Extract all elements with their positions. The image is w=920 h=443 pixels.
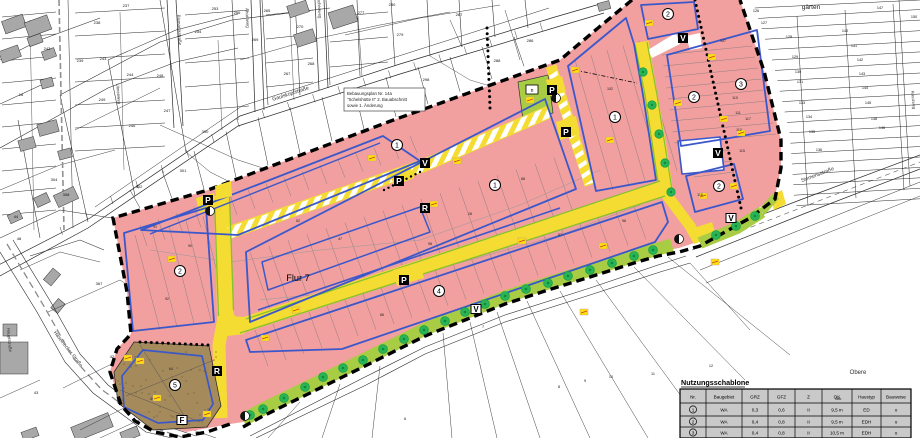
svg-text:0,8: 0,8 [778,419,785,424]
svg-text:4: 4 [437,289,441,296]
svg-text:II: II [807,407,810,412]
svg-text:0,3: 0,3 [752,407,759,412]
svg-text:P: P [563,127,569,137]
svg-text:239: 239 [77,58,84,63]
svg-text:88: 88 [521,177,525,181]
svg-text:134: 134 [806,115,812,119]
svg-text:Bebauungsplan Nr. 14a: Bebauungsplan Nr. 14a [347,91,393,96]
svg-text:52: 52 [296,219,300,223]
svg-text:Nr.: Nr. [690,395,696,400]
svg-text:11: 11 [651,372,655,376]
svg-text:269: 269 [252,37,259,42]
svg-text:145: 145 [865,101,871,105]
svg-text:o: o [895,430,898,435]
svg-text:308: 308 [63,192,70,197]
svg-text:143: 143 [859,72,865,76]
svg-text:18: 18 [19,92,24,97]
svg-text:gärten: gärten [802,4,821,11]
svg-text:141: 141 [851,44,857,48]
svg-text:3: 3 [692,431,695,436]
svg-text:304: 304 [51,177,58,182]
svg-text:o: o [895,419,898,424]
svg-text:111: 111 [735,111,740,115]
svg-text:II: II [807,419,810,424]
svg-text:V: V [728,214,734,223]
svg-text:268: 268 [308,61,315,66]
svg-text:286: 286 [527,38,534,43]
svg-text:367: 367 [96,281,103,286]
svg-text:238: 238 [94,20,101,25]
svg-text:237: 237 [123,3,130,8]
svg-text:135: 135 [809,130,815,134]
svg-text:Geb.: Geb. [835,397,842,401]
svg-text:253: 253 [212,6,219,11]
svg-text:110: 110 [732,96,738,100]
svg-text:115: 115 [739,149,745,153]
svg-text:GRZ: GRZ [750,395,760,400]
svg-text:0,4: 0,4 [752,430,759,435]
svg-text:Z: Z [807,395,810,400]
svg-text:P: P [549,85,555,95]
svg-text:2: 2 [692,95,696,102]
svg-text:II: II [807,430,810,435]
svg-text:90: 90 [188,244,192,248]
svg-text:0,8: 0,8 [778,430,785,435]
svg-text:n: n [531,88,534,94]
svg-text:92: 92 [165,297,169,301]
svg-text:7: 7 [482,325,484,329]
svg-text:Flur 7: Flur 7 [286,273,310,283]
svg-text:279: 279 [397,32,404,37]
svg-text:1: 1 [692,408,695,413]
svg-text:P: P [396,176,402,186]
svg-text:287: 287 [456,12,463,17]
svg-text:28: 28 [468,212,472,216]
svg-text:GFZ: GFZ [777,395,786,400]
svg-text:R: R [214,366,220,376]
svg-text:WA: WA [720,407,728,412]
svg-text:102: 102 [607,87,613,91]
svg-text:117: 117 [745,117,751,121]
svg-text:270: 270 [297,24,304,29]
svg-text:243: 243 [100,56,107,61]
svg-text:12: 12 [709,364,713,368]
svg-text:147: 147 [877,6,883,10]
svg-text:265: 265 [264,8,271,13]
svg-text:Nutzungsschablone: Nutzungsschablone [681,378,749,387]
svg-text:91: 91 [153,225,157,229]
svg-text:256: 256 [234,10,241,15]
svg-text:V: V [680,33,686,43]
svg-text:44: 44 [14,214,19,219]
svg-text:10,5 m: 10,5 m [830,430,844,435]
svg-text:sowie 1. Änderung: sowie 1. Änderung [347,103,383,108]
svg-text:131: 131 [797,80,803,84]
svg-text:129: 129 [792,55,798,59]
svg-text:Obere: Obere [850,370,867,376]
svg-text:F: F [180,416,185,425]
svg-text:144: 144 [862,86,868,90]
svg-text:o: o [895,407,898,412]
svg-text:Ahornweg: Ahornweg [244,8,250,29]
svg-text:ED: ED [863,407,870,412]
svg-text:"Schelshütte II" 2. Bauabschni: "Schelshütte II" 2. Bauabschnitt [347,97,408,102]
svg-text:V: V [473,305,479,314]
svg-text:288: 288 [494,58,501,63]
svg-text:87: 87 [558,233,562,237]
svg-text:6: 6 [404,417,406,421]
svg-text:5: 5 [173,383,177,390]
svg-text:WA: WA [720,430,728,435]
svg-text:9,5 m: 9,5 m [831,407,843,412]
svg-text:10: 10 [609,375,613,379]
svg-text:112: 112 [736,128,742,132]
svg-text:Baugebiet: Baugebiet [714,395,735,400]
svg-text:146: 146 [879,126,885,130]
svg-text:2: 2 [666,12,670,19]
svg-text:9,5 m: 9,5 m [831,419,843,424]
svg-text:V: V [422,158,428,168]
svg-text:116: 116 [697,193,703,197]
svg-text:128: 128 [786,35,792,39]
svg-text:1: 1 [613,115,617,122]
svg-text:47: 47 [338,237,342,241]
svg-text:249: 249 [99,97,106,102]
svg-text:298: 298 [423,77,430,82]
svg-text:48: 48 [17,236,22,241]
svg-text:140: 140 [842,29,848,33]
svg-text:1: 1 [395,143,399,150]
svg-text:P: P [205,195,211,205]
svg-text:1: 1 [493,183,497,190]
svg-text:0,6: 0,6 [778,407,785,412]
svg-text:EDH: EDH [862,430,872,435]
svg-text:148: 148 [871,117,877,121]
svg-text:254: 254 [195,29,202,34]
svg-text:107: 107 [720,39,726,43]
svg-text:Bauweise: Bauweise [886,395,906,400]
svg-text:2: 2 [178,269,182,276]
svg-text:R: R [422,203,428,213]
svg-text:98: 98 [428,242,432,246]
svg-text:P: P [401,275,407,285]
svg-text:9: 9 [584,379,586,383]
svg-text:277: 277 [358,10,365,15]
svg-text:133: 133 [799,101,805,105]
svg-text:2: 2 [692,420,695,425]
svg-text:V: V [715,148,721,158]
svg-text:248: 248 [157,73,164,78]
svg-text:267: 267 [284,71,291,76]
svg-text:EDH: EDH [862,419,872,424]
svg-text:246: 246 [129,123,136,128]
svg-text:96: 96 [622,219,626,223]
svg-text:280: 280 [389,2,396,7]
svg-text:43: 43 [34,390,39,395]
svg-text:247: 247 [164,108,171,113]
svg-text:127: 127 [761,21,767,25]
svg-text:300: 300 [202,129,209,134]
svg-text:2: 2 [717,184,721,191]
svg-text:WA: WA [720,419,728,424]
svg-text:86: 86 [380,313,384,317]
svg-text:150: 150 [911,15,917,19]
svg-text:3: 3 [739,82,743,89]
svg-text:301: 301 [180,168,187,173]
svg-text:243: 243 [44,46,51,51]
svg-text:126: 126 [753,9,759,13]
svg-text:136: 136 [816,148,822,152]
svg-text:302: 302 [136,184,143,189]
svg-text:142: 142 [857,58,863,62]
svg-text:244: 244 [127,72,134,77]
svg-text:64: 64 [169,367,173,371]
svg-text:0,4: 0,4 [752,419,759,424]
svg-text:130: 130 [795,70,801,74]
svg-text:Haustyp: Haustyp [858,395,875,400]
svg-text:8: 8 [558,385,560,389]
